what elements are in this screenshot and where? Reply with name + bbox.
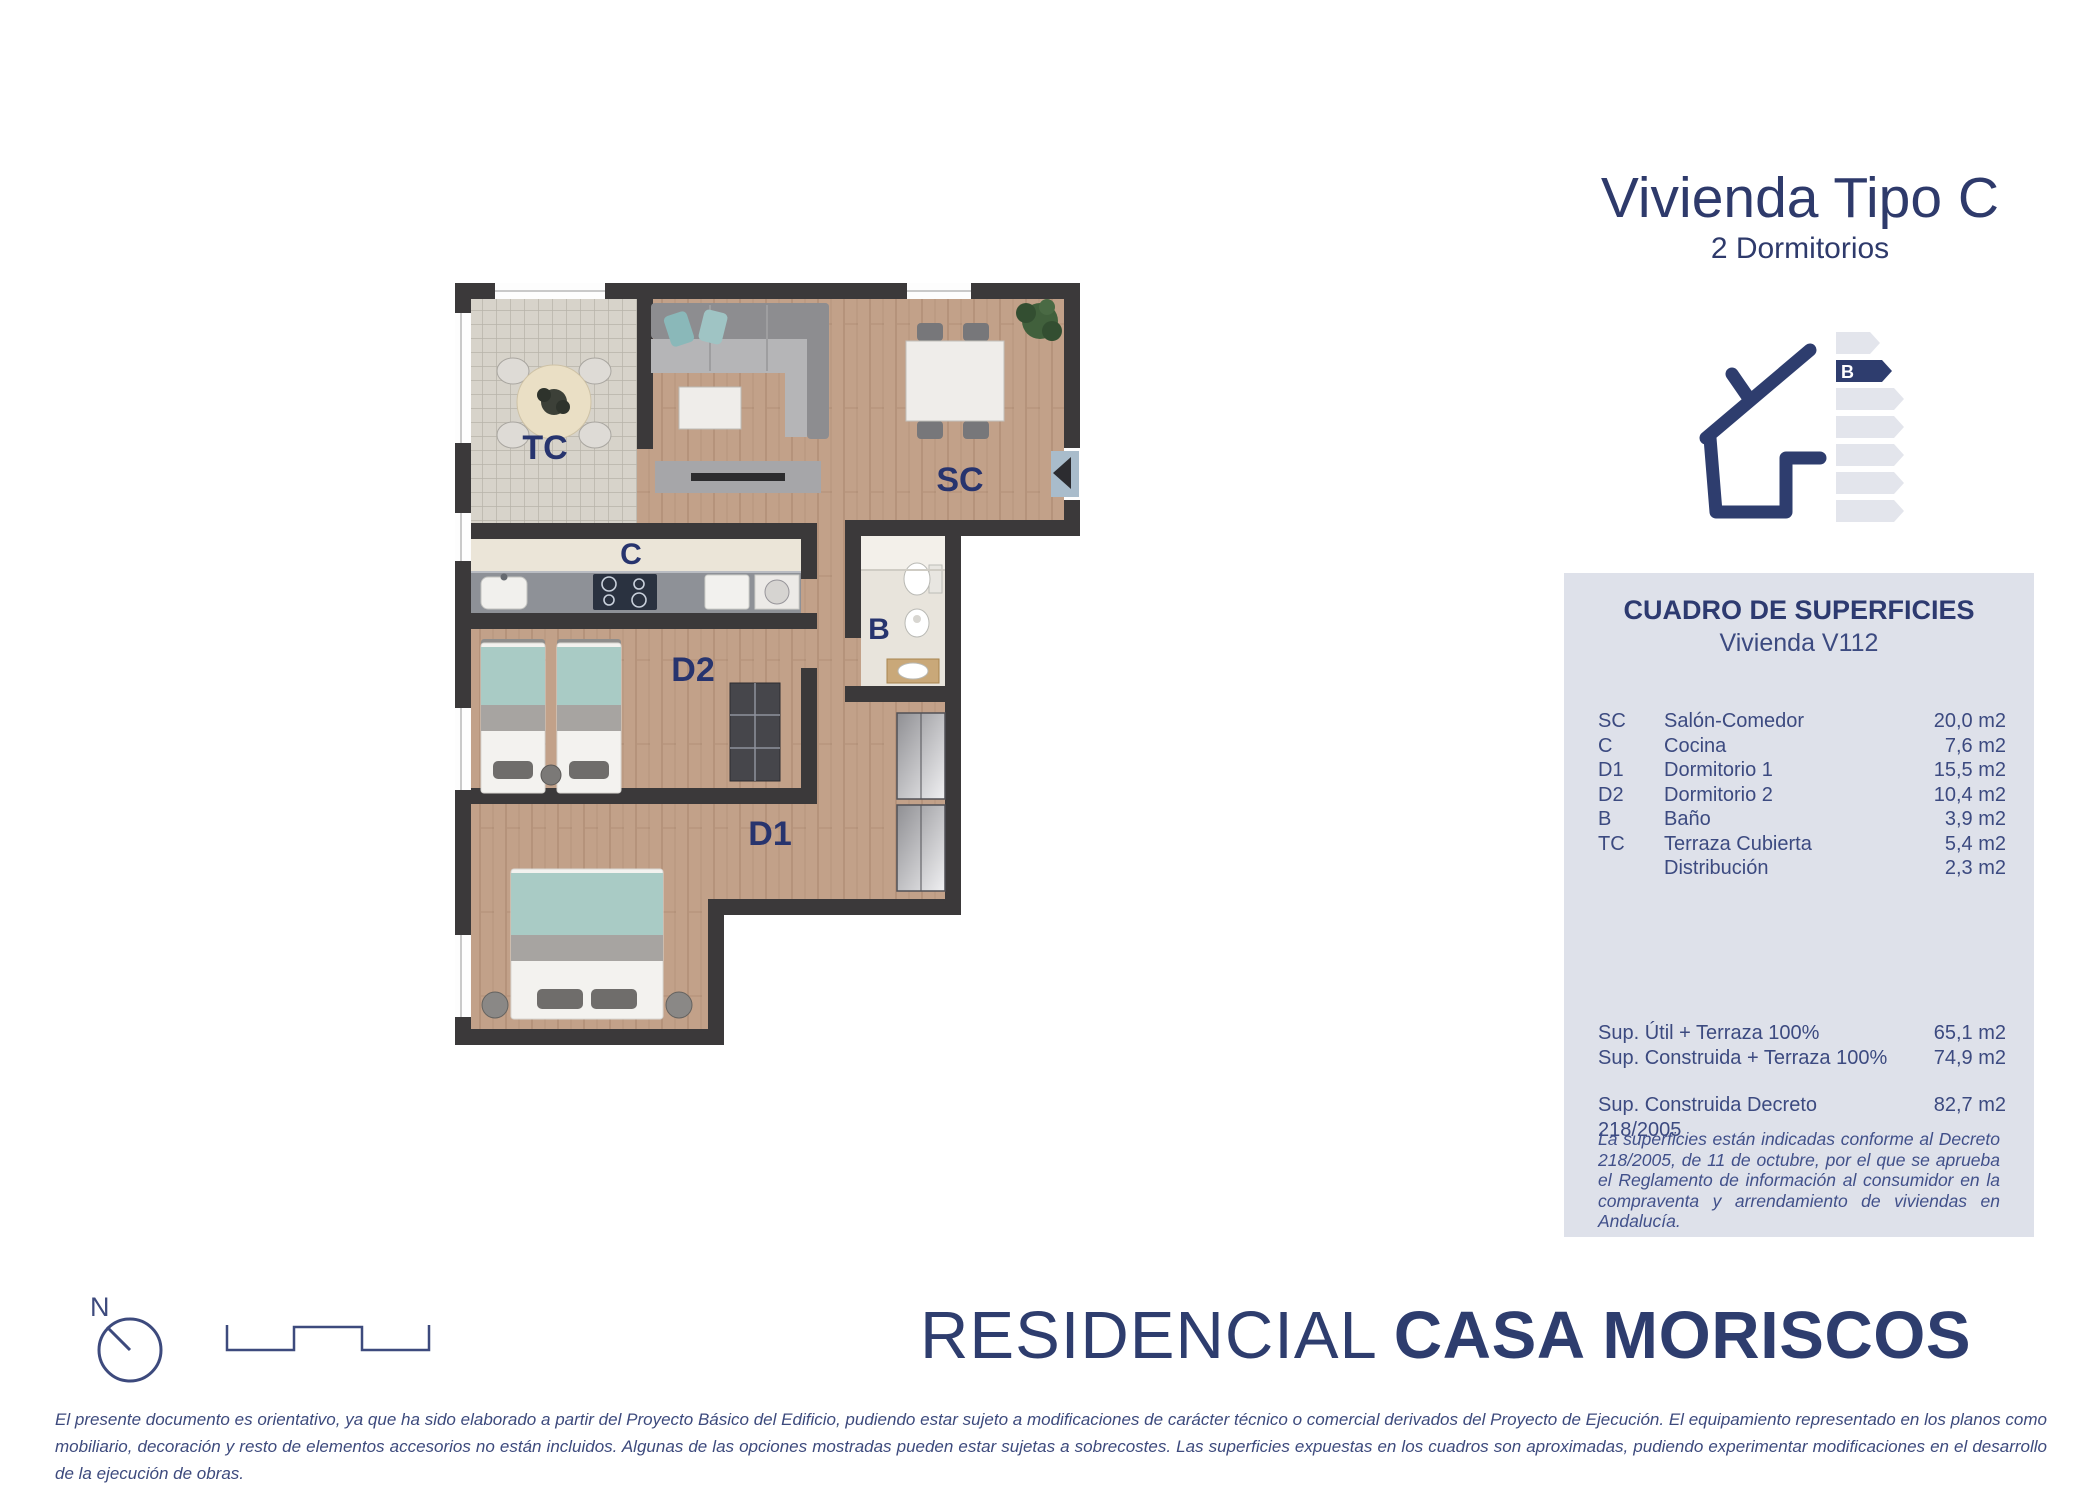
surfaces-panel: CUADRO DE SUPERFICIES Vivienda V112 SC S… bbox=[1564, 573, 2034, 1237]
brand-prefix: RESIDENCIAL bbox=[920, 1298, 1378, 1373]
row-code: TC bbox=[1598, 832, 1664, 857]
table-row: D2 Dormitorio 2 10,4 m2 bbox=[1564, 783, 2034, 808]
wardrobe bbox=[730, 683, 780, 781]
brand-logo: RESIDENCIALCASA MORISCOS bbox=[920, 1300, 1971, 1372]
row-code: SC bbox=[1598, 709, 1664, 734]
row-code bbox=[1598, 856, 1664, 881]
total-value: 65,1 m2 bbox=[1894, 1021, 2006, 1046]
row-code: B bbox=[1598, 807, 1664, 832]
scale-bar-icon bbox=[225, 1324, 431, 1359]
energy-rating-letter: B bbox=[1841, 362, 1854, 382]
room-label-sc: SC bbox=[936, 461, 983, 499]
row-value: 7,6 m2 bbox=[1894, 734, 2006, 759]
floor-plan: TC SC C B D2 D1 bbox=[455, 283, 1080, 1045]
energy-rating-icon: B bbox=[1688, 330, 1904, 532]
row-value: 15,5 m2 bbox=[1894, 758, 2006, 783]
table-row: SC Salón-Comedor 20,0 m2 bbox=[1564, 709, 2034, 734]
room-label-c: C bbox=[620, 538, 642, 571]
bed-single bbox=[481, 639, 545, 793]
table-row: TC Terraza Cubierta 5,4 m2 bbox=[1564, 832, 2034, 857]
table-row: D1 Dormitorio 1 15,5 m2 bbox=[1564, 758, 2034, 783]
page-subtitle: 2 Dormitorios bbox=[1540, 232, 2060, 266]
room-label-d2: D2 bbox=[671, 651, 714, 689]
kitchen-counter bbox=[471, 571, 801, 613]
room-label-d1: D1 bbox=[748, 815, 791, 853]
row-value: 10,4 m2 bbox=[1894, 783, 2006, 808]
table-row: C Cocina 7,6 m2 bbox=[1564, 734, 2034, 759]
total-row: Sup. Construida + Terraza 100% 74,9 m2 bbox=[1564, 1046, 2034, 1071]
page-title: Vivienda Tipo C bbox=[1540, 168, 2060, 228]
house-icon bbox=[1706, 350, 1820, 512]
row-value: 20,0 m2 bbox=[1894, 709, 2006, 734]
brochure-page: TC SC C B D2 D1 Vivienda Tipo C 2 Dormit… bbox=[0, 0, 2100, 1485]
tv-cabinet bbox=[655, 461, 821, 493]
table-row: Distribución 2,3 m2 bbox=[1564, 856, 2034, 881]
row-value: 5,4 m2 bbox=[1894, 832, 2006, 857]
north-compass-icon: N bbox=[82, 1292, 178, 1397]
energy-bars: B bbox=[1836, 332, 1904, 522]
floor-plan-drawing: TC SC C B D2 D1 bbox=[455, 283, 1080, 1045]
row-name: Dormitorio 1 bbox=[1664, 758, 1894, 783]
row-name: Baño bbox=[1664, 807, 1894, 832]
bed-double bbox=[482, 869, 692, 1019]
totals-block: Sup. Útil + Terraza 100% 65,1 m2 Sup. Co… bbox=[1564, 1021, 2034, 1070]
room-label-tc: TC bbox=[522, 429, 567, 467]
row-name: Cocina bbox=[1664, 734, 1894, 759]
row-name: Distribución bbox=[1664, 856, 1894, 881]
row-value: 3,9 m2 bbox=[1894, 807, 2006, 832]
row-code: D2 bbox=[1598, 783, 1664, 808]
panel-heading: CUADRO DE SUPERFICIES bbox=[1564, 595, 2034, 626]
row-name: Salón-Comedor bbox=[1664, 709, 1894, 734]
bed-single bbox=[557, 639, 621, 793]
entrance-door bbox=[1051, 448, 1080, 500]
footer-disclaimer: El presente documento es orientativo, ya… bbox=[55, 1406, 2047, 1485]
row-value: 2,3 m2 bbox=[1894, 856, 2006, 881]
row-name: Terraza Cubierta bbox=[1664, 832, 1894, 857]
compass-north-label: N bbox=[90, 1292, 110, 1322]
stool bbox=[541, 765, 561, 785]
title-block: Vivienda Tipo C 2 Dormitorios bbox=[1540, 168, 2060, 266]
panel-subheading: Vivienda V112 bbox=[1564, 629, 2034, 658]
table-row: B Baño 3,9 m2 bbox=[1564, 807, 2034, 832]
total-label: Sup. Construida + Terraza 100% bbox=[1598, 1046, 1894, 1071]
total-row: Sup. Útil + Terraza 100% 65,1 m2 bbox=[1564, 1021, 2034, 1046]
brand-name: CASA MORISCOS bbox=[1394, 1298, 1971, 1373]
total-label: Sup. Útil + Terraza 100% bbox=[1598, 1021, 1894, 1046]
legal-note: La superficies están indicadas conforme … bbox=[1598, 1129, 2000, 1232]
surface-table: SC Salón-Comedor 20,0 m2 C Cocina 7,6 m2… bbox=[1564, 709, 2034, 881]
coffee-table bbox=[679, 387, 741, 429]
row-code: D1 bbox=[1598, 758, 1664, 783]
total-value: 74,9 m2 bbox=[1894, 1046, 2006, 1071]
row-name: Dormitorio 2 bbox=[1664, 783, 1894, 808]
row-code: C bbox=[1598, 734, 1664, 759]
room-label-b: B bbox=[868, 613, 890, 646]
